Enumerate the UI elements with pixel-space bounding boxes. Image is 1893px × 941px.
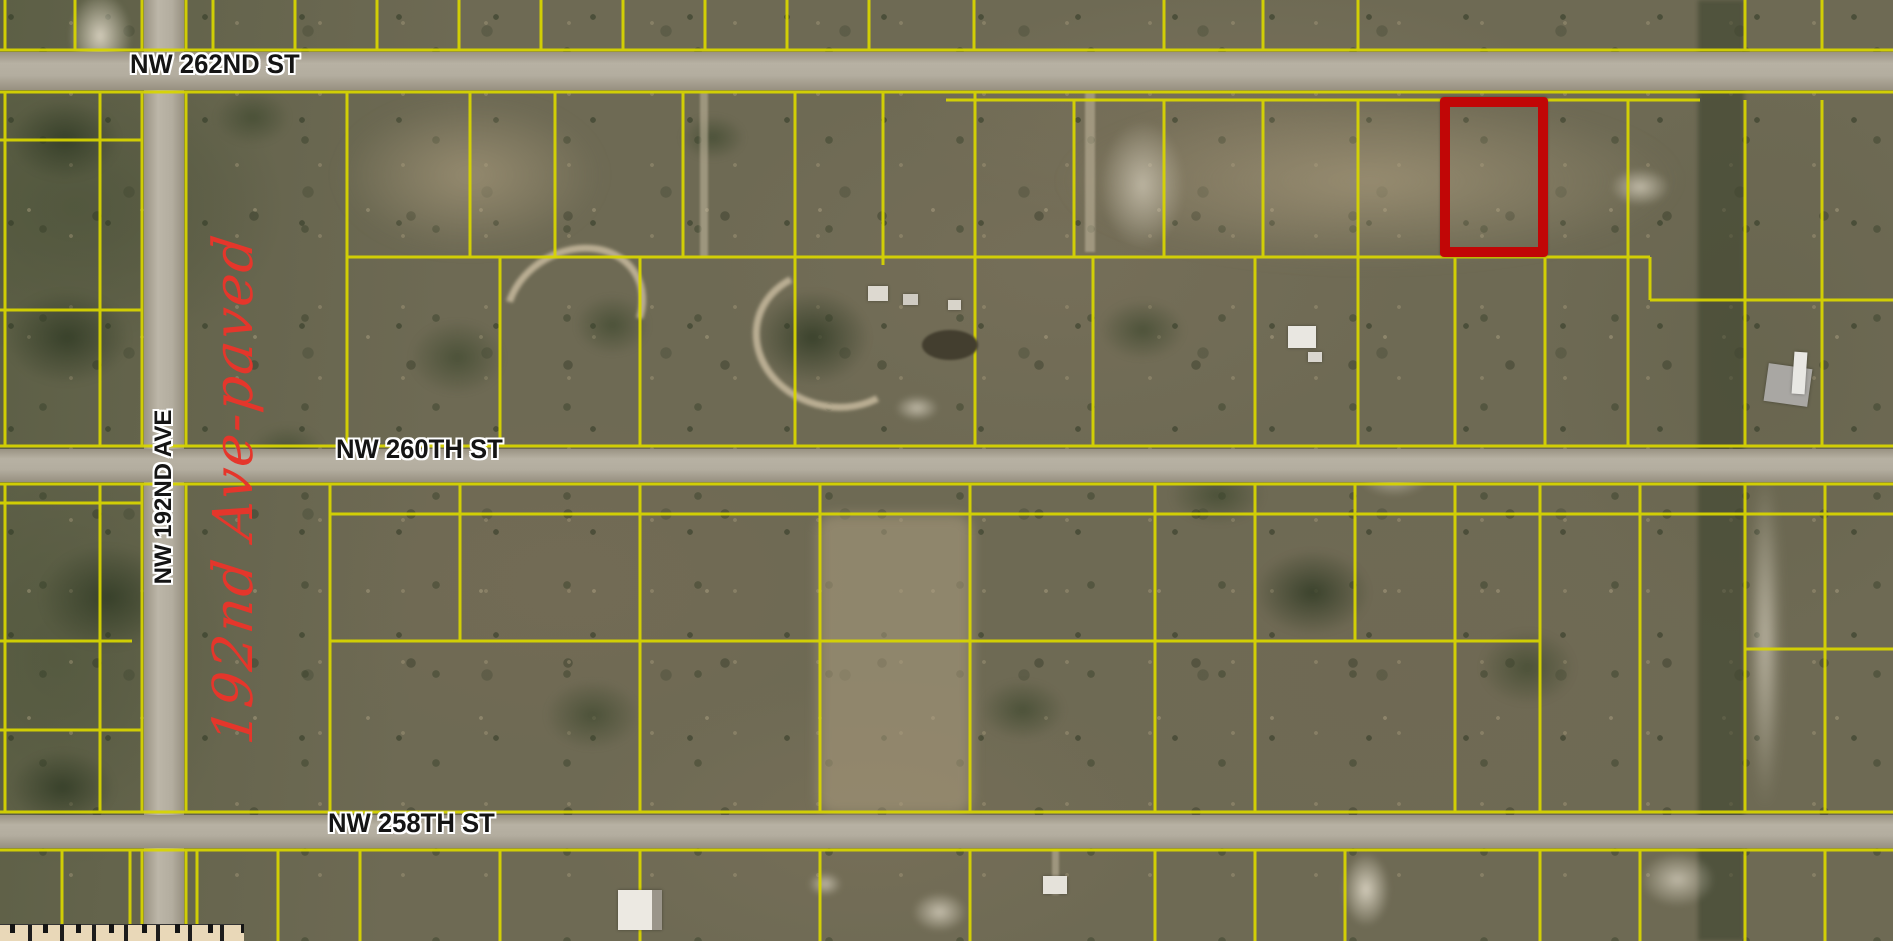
handwritten-annotation: 192nd Ave-paved <box>201 230 265 747</box>
map-canvas[interactable]: NW 262ND ST NW 260TH ST NW 258TH ST NW 1… <box>0 0 1893 941</box>
street-label-nw-192nd-ave: NW 192ND AVE <box>150 410 178 585</box>
parcel-line-group <box>0 0 1893 941</box>
parcel-grid-overlay <box>0 0 1893 941</box>
homestead-building <box>948 300 961 310</box>
street-label-nw-258th-st: NW 258TH ST <box>328 808 495 839</box>
street-label-nw-262nd-st: NW 262ND ST <box>130 49 300 80</box>
highlight-rectangle <box>1440 97 1548 257</box>
homestead-pond <box>922 330 978 360</box>
homestead-building <box>868 286 888 301</box>
small-building <box>1288 326 1316 348</box>
small-building <box>1043 876 1067 894</box>
street-label-nw-260th-st: NW 260TH ST <box>336 434 503 465</box>
small-building <box>618 890 662 930</box>
building-row-marks <box>10 924 244 933</box>
small-building <box>1308 352 1322 362</box>
homestead-building <box>903 294 918 305</box>
